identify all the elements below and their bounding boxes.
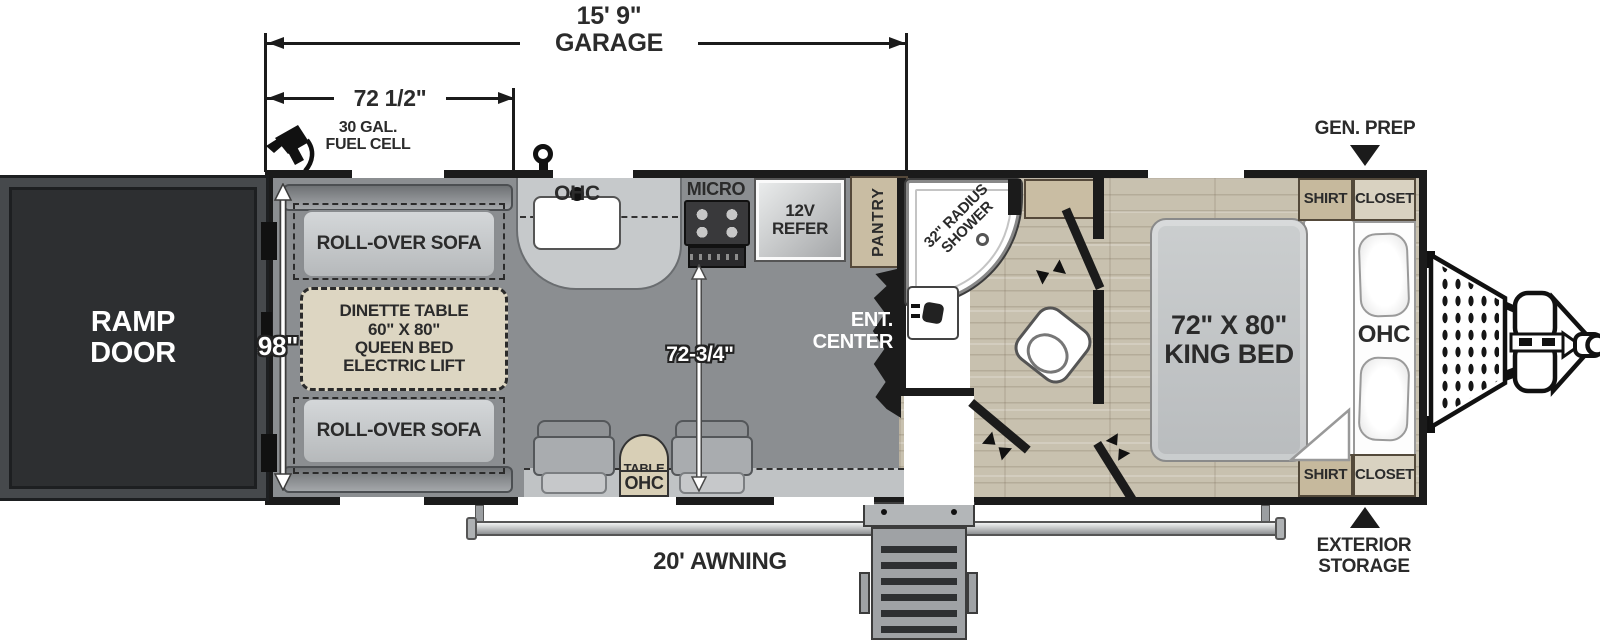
entry-steps [871, 527, 967, 640]
ramp-door: RAMP DOOR [0, 178, 266, 498]
garage-length-label: 15' 9" GARAGE [520, 0, 698, 60]
dimension-arrow-right-icon [889, 37, 905, 49]
exterior-storage-label: EXTERIOR STORAGE [1304, 531, 1424, 583]
step-side-tab [967, 572, 978, 614]
bedroom-wall-mid [1093, 290, 1104, 404]
exterior-storage-arrow-icon [1350, 507, 1380, 528]
shirt-closet-bottom-right: CLOSET [1353, 454, 1416, 497]
king-bed: 72" X 80" KING BED [1150, 218, 1308, 462]
chair [533, 420, 615, 497]
kitchen-ohc-label: OHC [532, 181, 622, 207]
garage-length-value: 15' 9" [577, 3, 642, 30]
hitch-ball [1588, 336, 1600, 355]
awning-label: 20' AWNING [640, 546, 800, 578]
ent-center-label: ENT. CENTER [793, 310, 893, 356]
chair [671, 420, 753, 497]
hitch-assembly [1427, 243, 1600, 448]
awning-end-cap [466, 517, 477, 540]
awning-post [1261, 505, 1270, 522]
entry-alcove [904, 395, 974, 505]
opening-dim-label: 72-3/4" [650, 340, 750, 370]
entry-alcove-wall [902, 388, 974, 396]
window [553, 170, 633, 178]
micro-label: MICRO [678, 179, 754, 201]
fuel-pump-icon [262, 114, 316, 174]
window [340, 497, 424, 505]
width-label: 98" [248, 328, 308, 364]
fuel-cell-label: 30 GAL. FUEL CELL [316, 114, 420, 158]
shower-drain-icon [976, 233, 989, 246]
table-ohc: OHC [619, 470, 669, 497]
step-side-tab [859, 572, 870, 614]
shirt-closet-top-right: CLOSET [1353, 178, 1416, 221]
bath-wall-stub [1008, 179, 1021, 215]
window [352, 170, 444, 178]
shirt-closet-top-left: SHIRT [1298, 178, 1353, 221]
pillow [1358, 232, 1411, 318]
window [774, 497, 874, 505]
window [518, 497, 676, 505]
refrigerator: 12V REFER [754, 178, 846, 262]
bedroom-wall-top [1093, 178, 1104, 239]
bedroom-ohc-label: OHC [1352, 320, 1416, 350]
sofa-top-outline [293, 203, 505, 280]
garage-length-word: GARAGE [555, 30, 663, 57]
garage-dim-ext-right [905, 33, 908, 172]
sofa-bottom-outline [293, 397, 505, 474]
sheet-fold [1289, 406, 1353, 463]
tank-tray [1511, 334, 1563, 351]
front-length-label: 72 1/2" [334, 80, 446, 116]
bath-cabinet [1024, 179, 1096, 219]
pillow [1358, 356, 1411, 442]
dimension-arrow-left-icon [268, 92, 284, 104]
dimension-arrow-left-icon [268, 37, 284, 49]
dinette-table: DINETTE TABLE 60" X 80" QUEEN BED ELECTR… [300, 287, 508, 391]
gen-prep-arrow-icon [1350, 145, 1380, 166]
dimension-arrow-right-icon [498, 92, 514, 104]
entry-steps-platform [863, 502, 975, 527]
gen-prep-label: GEN. PREP [1308, 116, 1422, 142]
awning-end-cap [1275, 517, 1286, 540]
utility-hookup-icon [533, 144, 553, 164]
opening-dim-arrow [688, 264, 710, 492]
bath-vanity [907, 286, 959, 340]
window [1148, 170, 1244, 178]
floorplan-canvas: 15' 9" GARAGE 72 1/2" 30 GAL. FUEL CELL … [0, 0, 1600, 640]
range-cooktop [684, 200, 750, 246]
